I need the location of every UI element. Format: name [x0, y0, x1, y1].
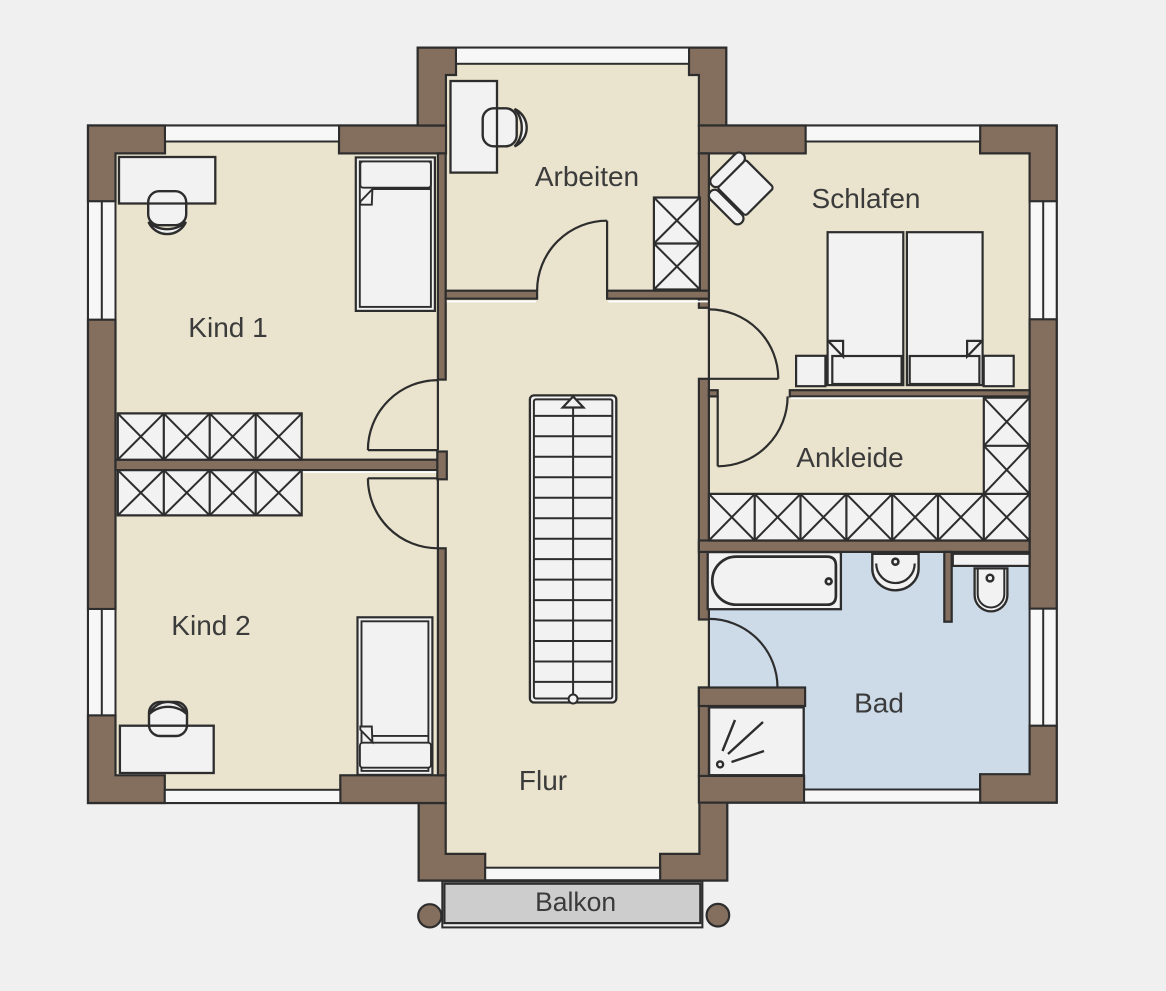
- svg-text:Arbeiten: Arbeiten: [535, 161, 639, 192]
- svg-text:Kind 2: Kind 2: [171, 610, 250, 641]
- svg-text:Bad: Bad: [854, 688, 904, 719]
- svg-text:Flur: Flur: [519, 765, 567, 796]
- svg-text:Ankleide: Ankleide: [796, 442, 903, 473]
- svg-text:Schlafen: Schlafen: [812, 183, 921, 214]
- svg-text:Balkon: Balkon: [535, 887, 616, 917]
- svg-text:Kind 1: Kind 1: [188, 312, 267, 343]
